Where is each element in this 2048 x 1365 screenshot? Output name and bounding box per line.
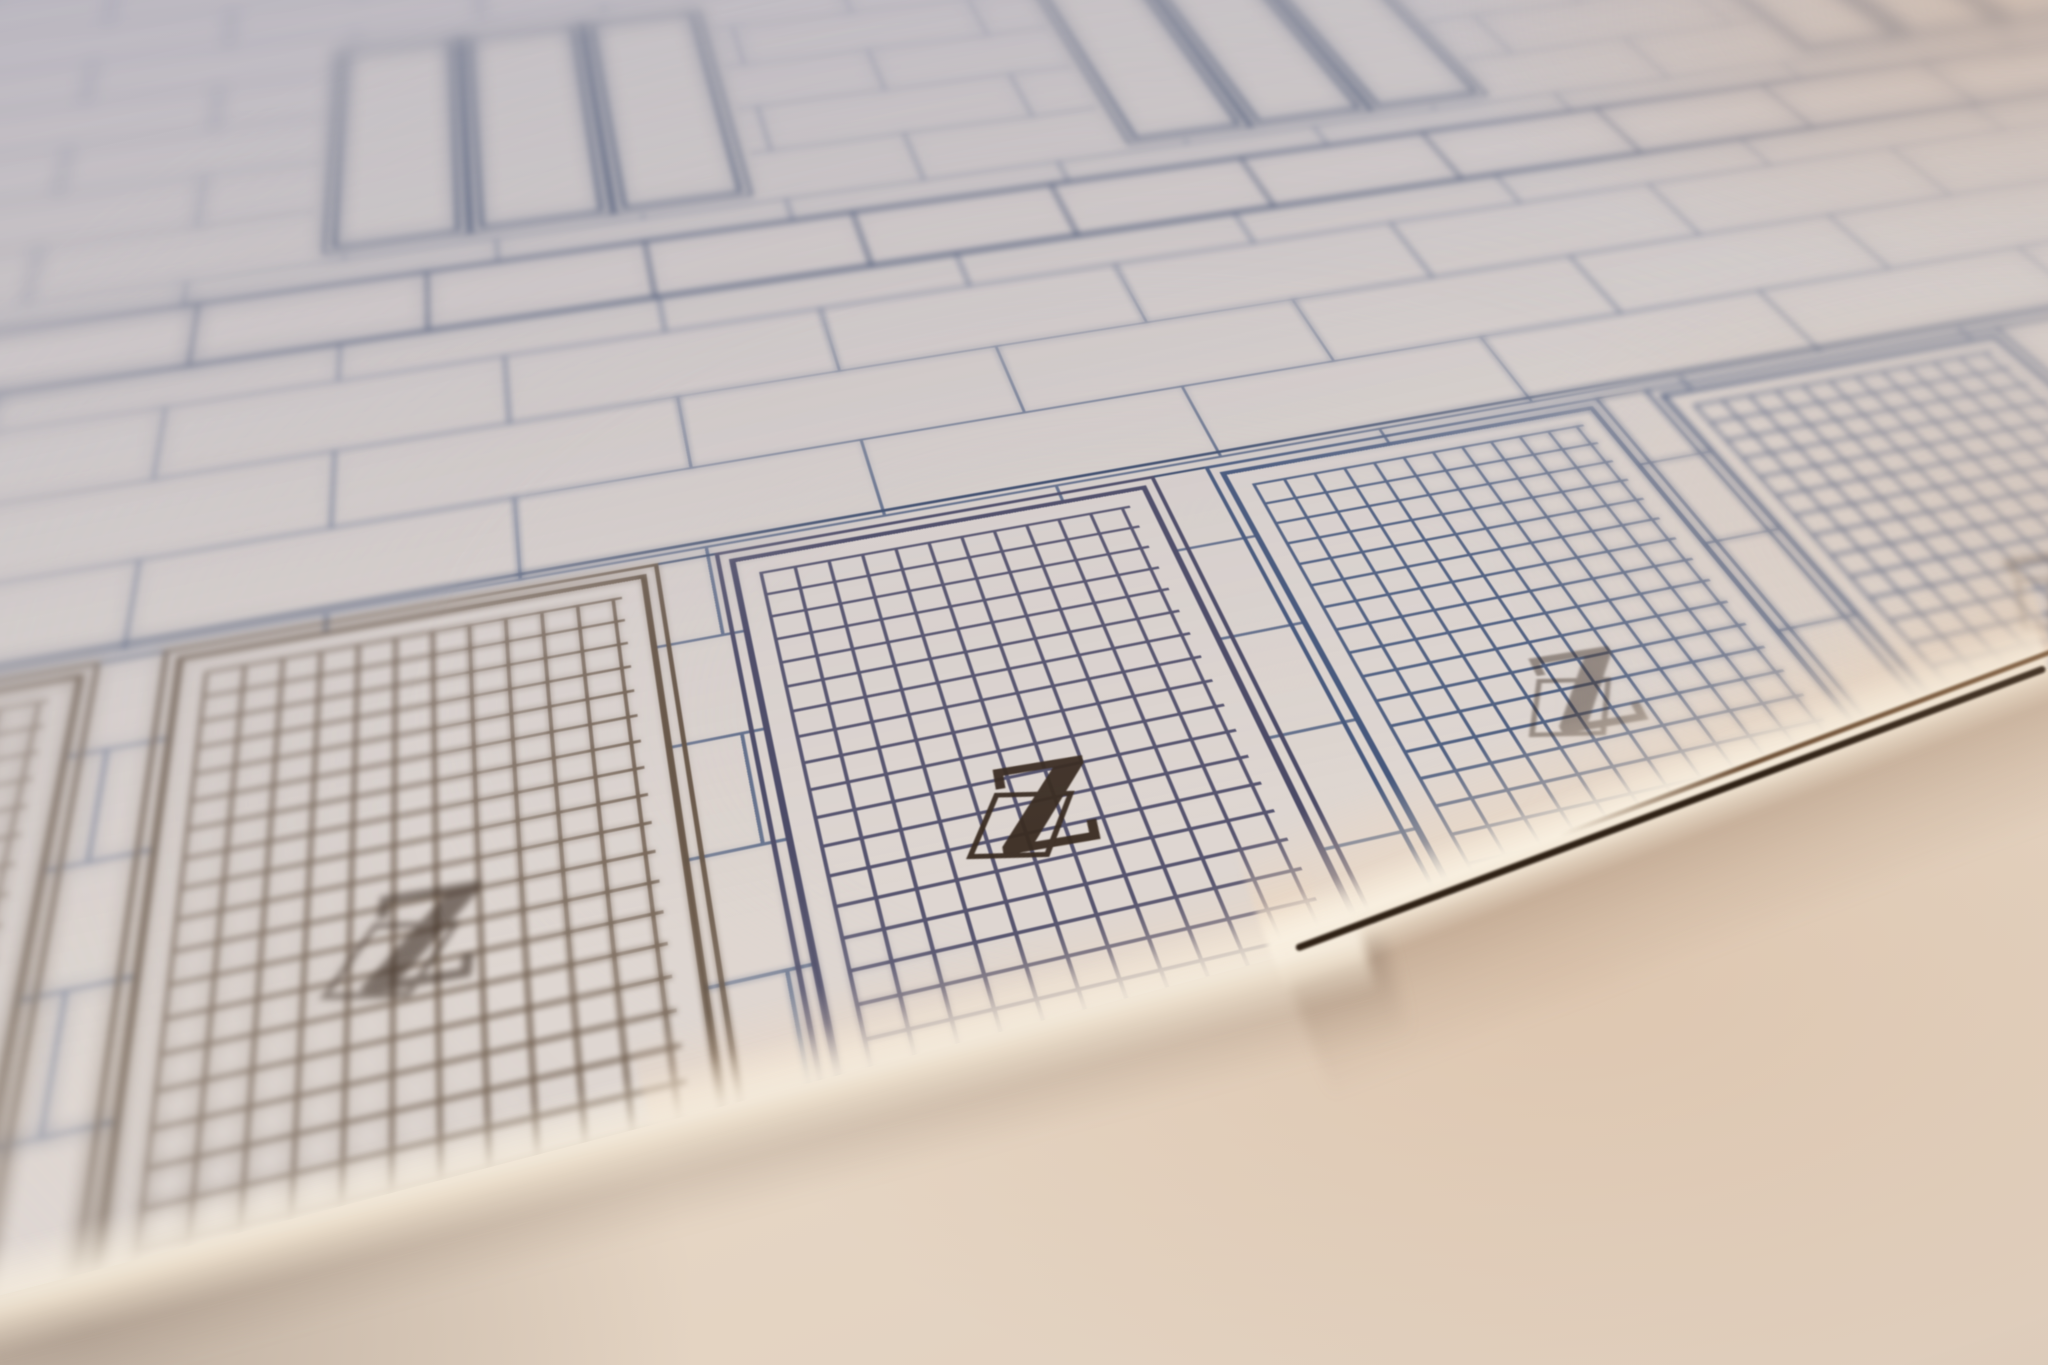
tall-window	[332, 41, 460, 248]
tall-window	[469, 27, 604, 228]
architect-monogram-stamp: Z	[357, 865, 478, 1016]
monogram-letter: Z	[351, 865, 484, 1018]
blueprint-photo-scene: Z Z Z	[0, 0, 2048, 1365]
